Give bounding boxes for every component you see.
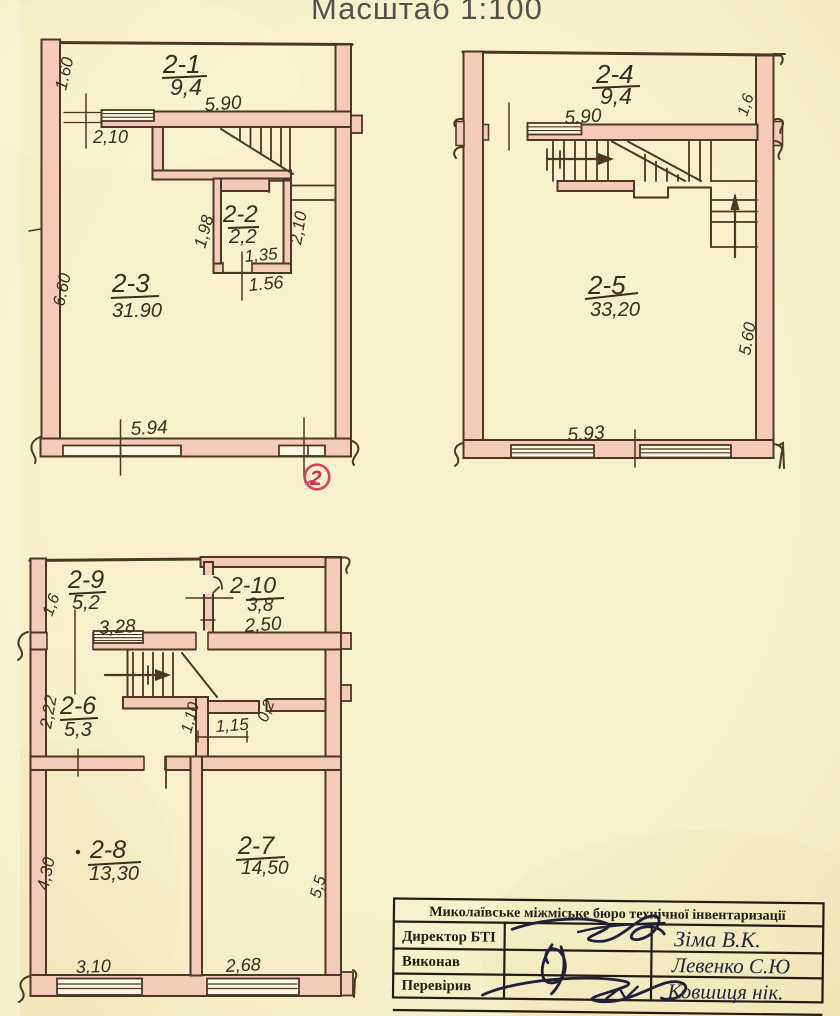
svg-text:9,4: 9,4 [600, 83, 632, 109]
svg-text:Перевірив: Перевірив [402, 978, 472, 995]
svg-text:2-8: 2-8 [89, 836, 126, 864]
svg-text:3,8: 3,8 [247, 595, 274, 616]
svg-text:5.90: 5.90 [204, 92, 243, 116]
svg-text:Директор БТІ: Директор БТІ [402, 929, 496, 946]
svg-text:1.56: 1.56 [248, 272, 286, 295]
svg-text:3,28: 3,28 [98, 616, 136, 639]
svg-text:2,68: 2,68 [224, 954, 261, 976]
svg-text:Левенко С.Ю: Левенко С.Ю [671, 953, 791, 978]
svg-text:2-6: 2-6 [59, 692, 96, 720]
svg-text:5.94: 5.94 [130, 417, 168, 440]
svg-text:31.90: 31.90 [112, 300, 162, 322]
svg-text:5.93: 5.93 [567, 422, 606, 446]
svg-text:Виконав: Виконав [402, 954, 460, 971]
svg-text:14,50: 14,50 [241, 858, 289, 879]
svg-text:Масштаб 1:100: Масштаб 1:100 [311, 0, 543, 26]
svg-text:5.90: 5.90 [564, 105, 603, 129]
svg-text:2,2: 2,2 [228, 226, 257, 248]
svg-text:5,2: 5,2 [72, 592, 100, 614]
svg-text:2-2: 2-2 [222, 201, 258, 228]
svg-text:2,50: 2,50 [243, 613, 283, 637]
svg-text:2-3: 2-3 [111, 268, 150, 298]
svg-text:2-9: 2-9 [67, 566, 104, 594]
svg-text:9,4: 9,4 [170, 74, 202, 100]
svg-text:1,15: 1,15 [215, 715, 250, 736]
svg-text:2,10: 2,10 [92, 127, 128, 147]
svg-text:Зіма В.К.: Зіма В.К. [674, 926, 761, 952]
svg-text:13,30: 13,30 [89, 863, 139, 885]
svg-text:33,20: 33,20 [590, 299, 640, 321]
svg-text:1,35: 1,35 [244, 244, 279, 266]
svg-text:5,3: 5,3 [64, 719, 92, 741]
svg-text:2-7: 2-7 [237, 832, 275, 860]
svg-text:2: 2 [309, 467, 322, 490]
svg-text:3,10: 3,10 [75, 956, 111, 977]
